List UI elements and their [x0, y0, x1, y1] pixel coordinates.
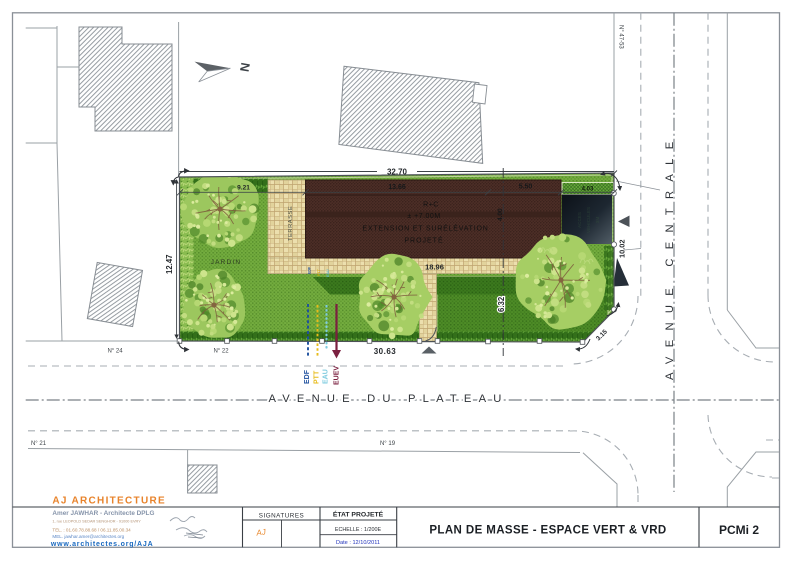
svg-text:3M: 3M	[595, 217, 600, 224]
svg-text:ECHELLE : 1/200E: ECHELLE : 1/200E	[335, 527, 382, 533]
svg-text:ÉTAT PROJETÉ: ÉTAT PROJETÉ	[333, 510, 384, 519]
svg-text:AJ ARCHITECTURE: AJ ARCHITECTURE	[52, 496, 166, 507]
svg-text:32.70: 32.70	[387, 168, 408, 177]
svg-text:AVENUE DU PLATEAU: AVENUE DU PLATEAU	[268, 393, 508, 405]
svg-text:4.03: 4.03	[582, 187, 594, 193]
svg-text:4.00: 4.00	[497, 208, 504, 221]
svg-text:18.96: 18.96	[425, 263, 444, 272]
svg-text:12.47: 12.47	[165, 254, 174, 274]
svg-text:SIGNATURES: SIGNATURES	[259, 513, 304, 520]
svg-text:± +7.00M: ± +7.00M	[407, 213, 440, 220]
svg-text:VEHICULES: VEHICULES	[586, 207, 591, 233]
svg-text:PLAN DE MASSE - ESPACE VERT &: PLAN DE MASSE - ESPACE VERT & VRD	[429, 525, 666, 537]
svg-text:PTT: PTT	[317, 268, 321, 276]
svg-text:EUEV: EUEV	[334, 366, 341, 385]
svg-text:EXTENSION ET SURÉLÉVATION: EXTENSION ET SURÉLÉVATION	[362, 224, 488, 233]
svg-text:13.66: 13.66	[388, 184, 406, 191]
svg-text:EAU: EAU	[326, 269, 330, 277]
svg-text:JARDIN: JARDIN	[211, 259, 242, 266]
svg-text:N° 21: N° 21	[31, 441, 47, 447]
svg-text:Amer JAWHAR - Architecte DPLG: Amer JAWHAR - Architecte DPLG	[52, 510, 154, 517]
svg-text:MEL. jawhar.amer@architectes.o: MEL. jawhar.amer@architectes.org	[52, 534, 124, 539]
svg-text:30.63: 30.63	[374, 347, 397, 356]
svg-text:EDF: EDF	[304, 369, 311, 384]
svg-text:R+C: R+C	[423, 202, 439, 209]
svg-text:PROJETÉ: PROJETÉ	[404, 236, 443, 245]
svg-text:6.32: 6.32	[497, 296, 506, 312]
svg-text:5.50: 5.50	[519, 184, 533, 191]
svg-text:N° 19: N° 19	[380, 441, 396, 447]
svg-text:TEL. : 01.60.78.88.68 / 06.11.: TEL. : 01.60.78.88.68 / 06.11.85.00.34	[52, 528, 131, 533]
svg-text:ACCES: ACCES	[577, 212, 582, 228]
svg-text:N° 24: N° 24	[107, 349, 123, 355]
svg-text:N° 22: N° 22	[213, 349, 229, 355]
svg-text:1, rue LEOPOLD SEDAR SENGHOR -: 1, rue LEOPOLD SEDAR SENGHOR - 91000 EVR…	[52, 520, 141, 524]
svg-text:AVENUE CENTRALE: AVENUE CENTRALE	[664, 133, 676, 380]
svg-text:10.02: 10.02	[618, 240, 627, 259]
svg-text:N° 47-53: N° 47-53	[618, 25, 624, 49]
svg-text:9.21: 9.21	[237, 185, 250, 192]
svg-text:TERRASSE: TERRASSE	[288, 206, 294, 241]
svg-text:www.architectes.org/AJA: www.architectes.org/AJA	[50, 541, 154, 548]
svg-text:PCMi 2: PCMi 2	[719, 523, 759, 537]
svg-text:Date : 12/10/2011: Date : 12/10/2011	[336, 540, 380, 546]
svg-text:EAU: EAU	[323, 369, 330, 384]
svg-text:PTT: PTT	[314, 370, 321, 384]
svg-text:EDF: EDF	[308, 266, 312, 274]
